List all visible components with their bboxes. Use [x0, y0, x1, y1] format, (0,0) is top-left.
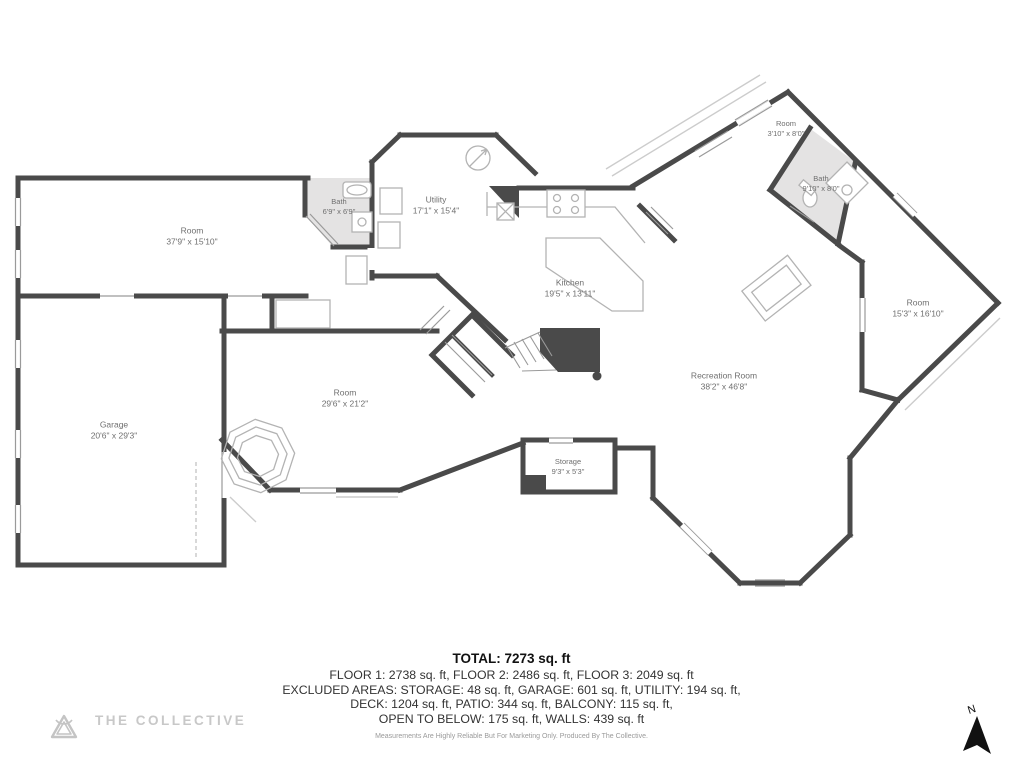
bathtub-icon [343, 182, 371, 198]
stairs-icon [445, 332, 556, 382]
disclaimer-text: Measurements Are Highly Reliable But For… [0, 733, 1023, 740]
excluded-areas-line: EXCLUDED AREAS: STORAGE: 48 sq. ft, GARA… [0, 683, 1023, 698]
floor-plan-page: N Room 37'9" x 15'10" Bath 6'9" x 6'9" U… [0, 0, 1023, 767]
floors-line: FLOOR 1: 2738 sq. ft, FLOOR 2: 2486 sq. … [0, 668, 1023, 683]
vanity-icon [352, 212, 372, 232]
electrical-icon [466, 146, 490, 170]
stove-icon [547, 190, 585, 217]
support-column-icon [593, 372, 602, 381]
deck-patio-line: DECK: 1204 sq. ft, PATIO: 344 sq. ft, BA… [0, 697, 1023, 712]
fireplace-icon [742, 255, 811, 321]
doors [196, 206, 814, 560]
brand-footer: THE COLLECTIVE [52, 713, 246, 728]
brand-name: THE COLLECTIVE [95, 713, 246, 728]
total-area: TOTAL: 7273 sq. ft [0, 651, 1023, 666]
kitchen-island [546, 238, 643, 311]
